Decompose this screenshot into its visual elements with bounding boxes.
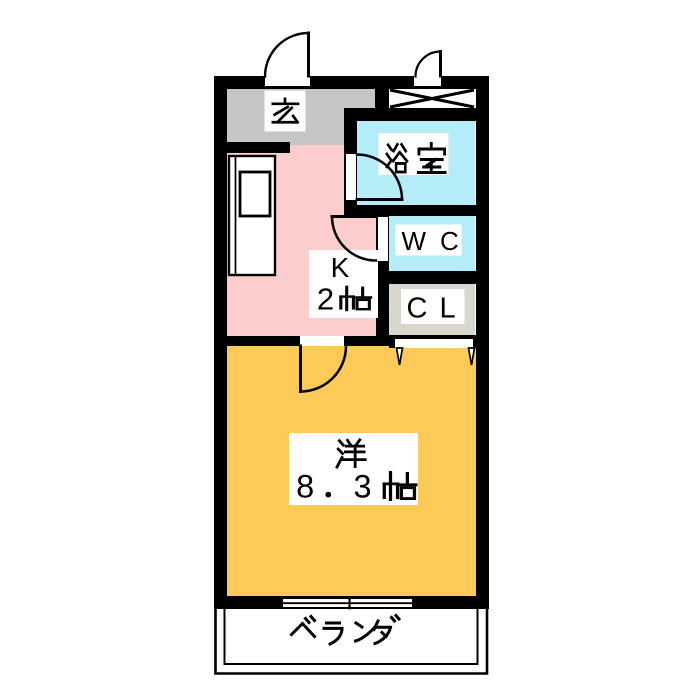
svg-text:CL: CL xyxy=(407,293,468,325)
svg-text:2: 2 xyxy=(317,282,334,317)
svg-text:WC: WC xyxy=(402,226,473,256)
svg-text:K: K xyxy=(331,252,350,283)
svg-text:3: 3 xyxy=(354,469,372,505)
svg-text:8: 8 xyxy=(296,469,314,505)
